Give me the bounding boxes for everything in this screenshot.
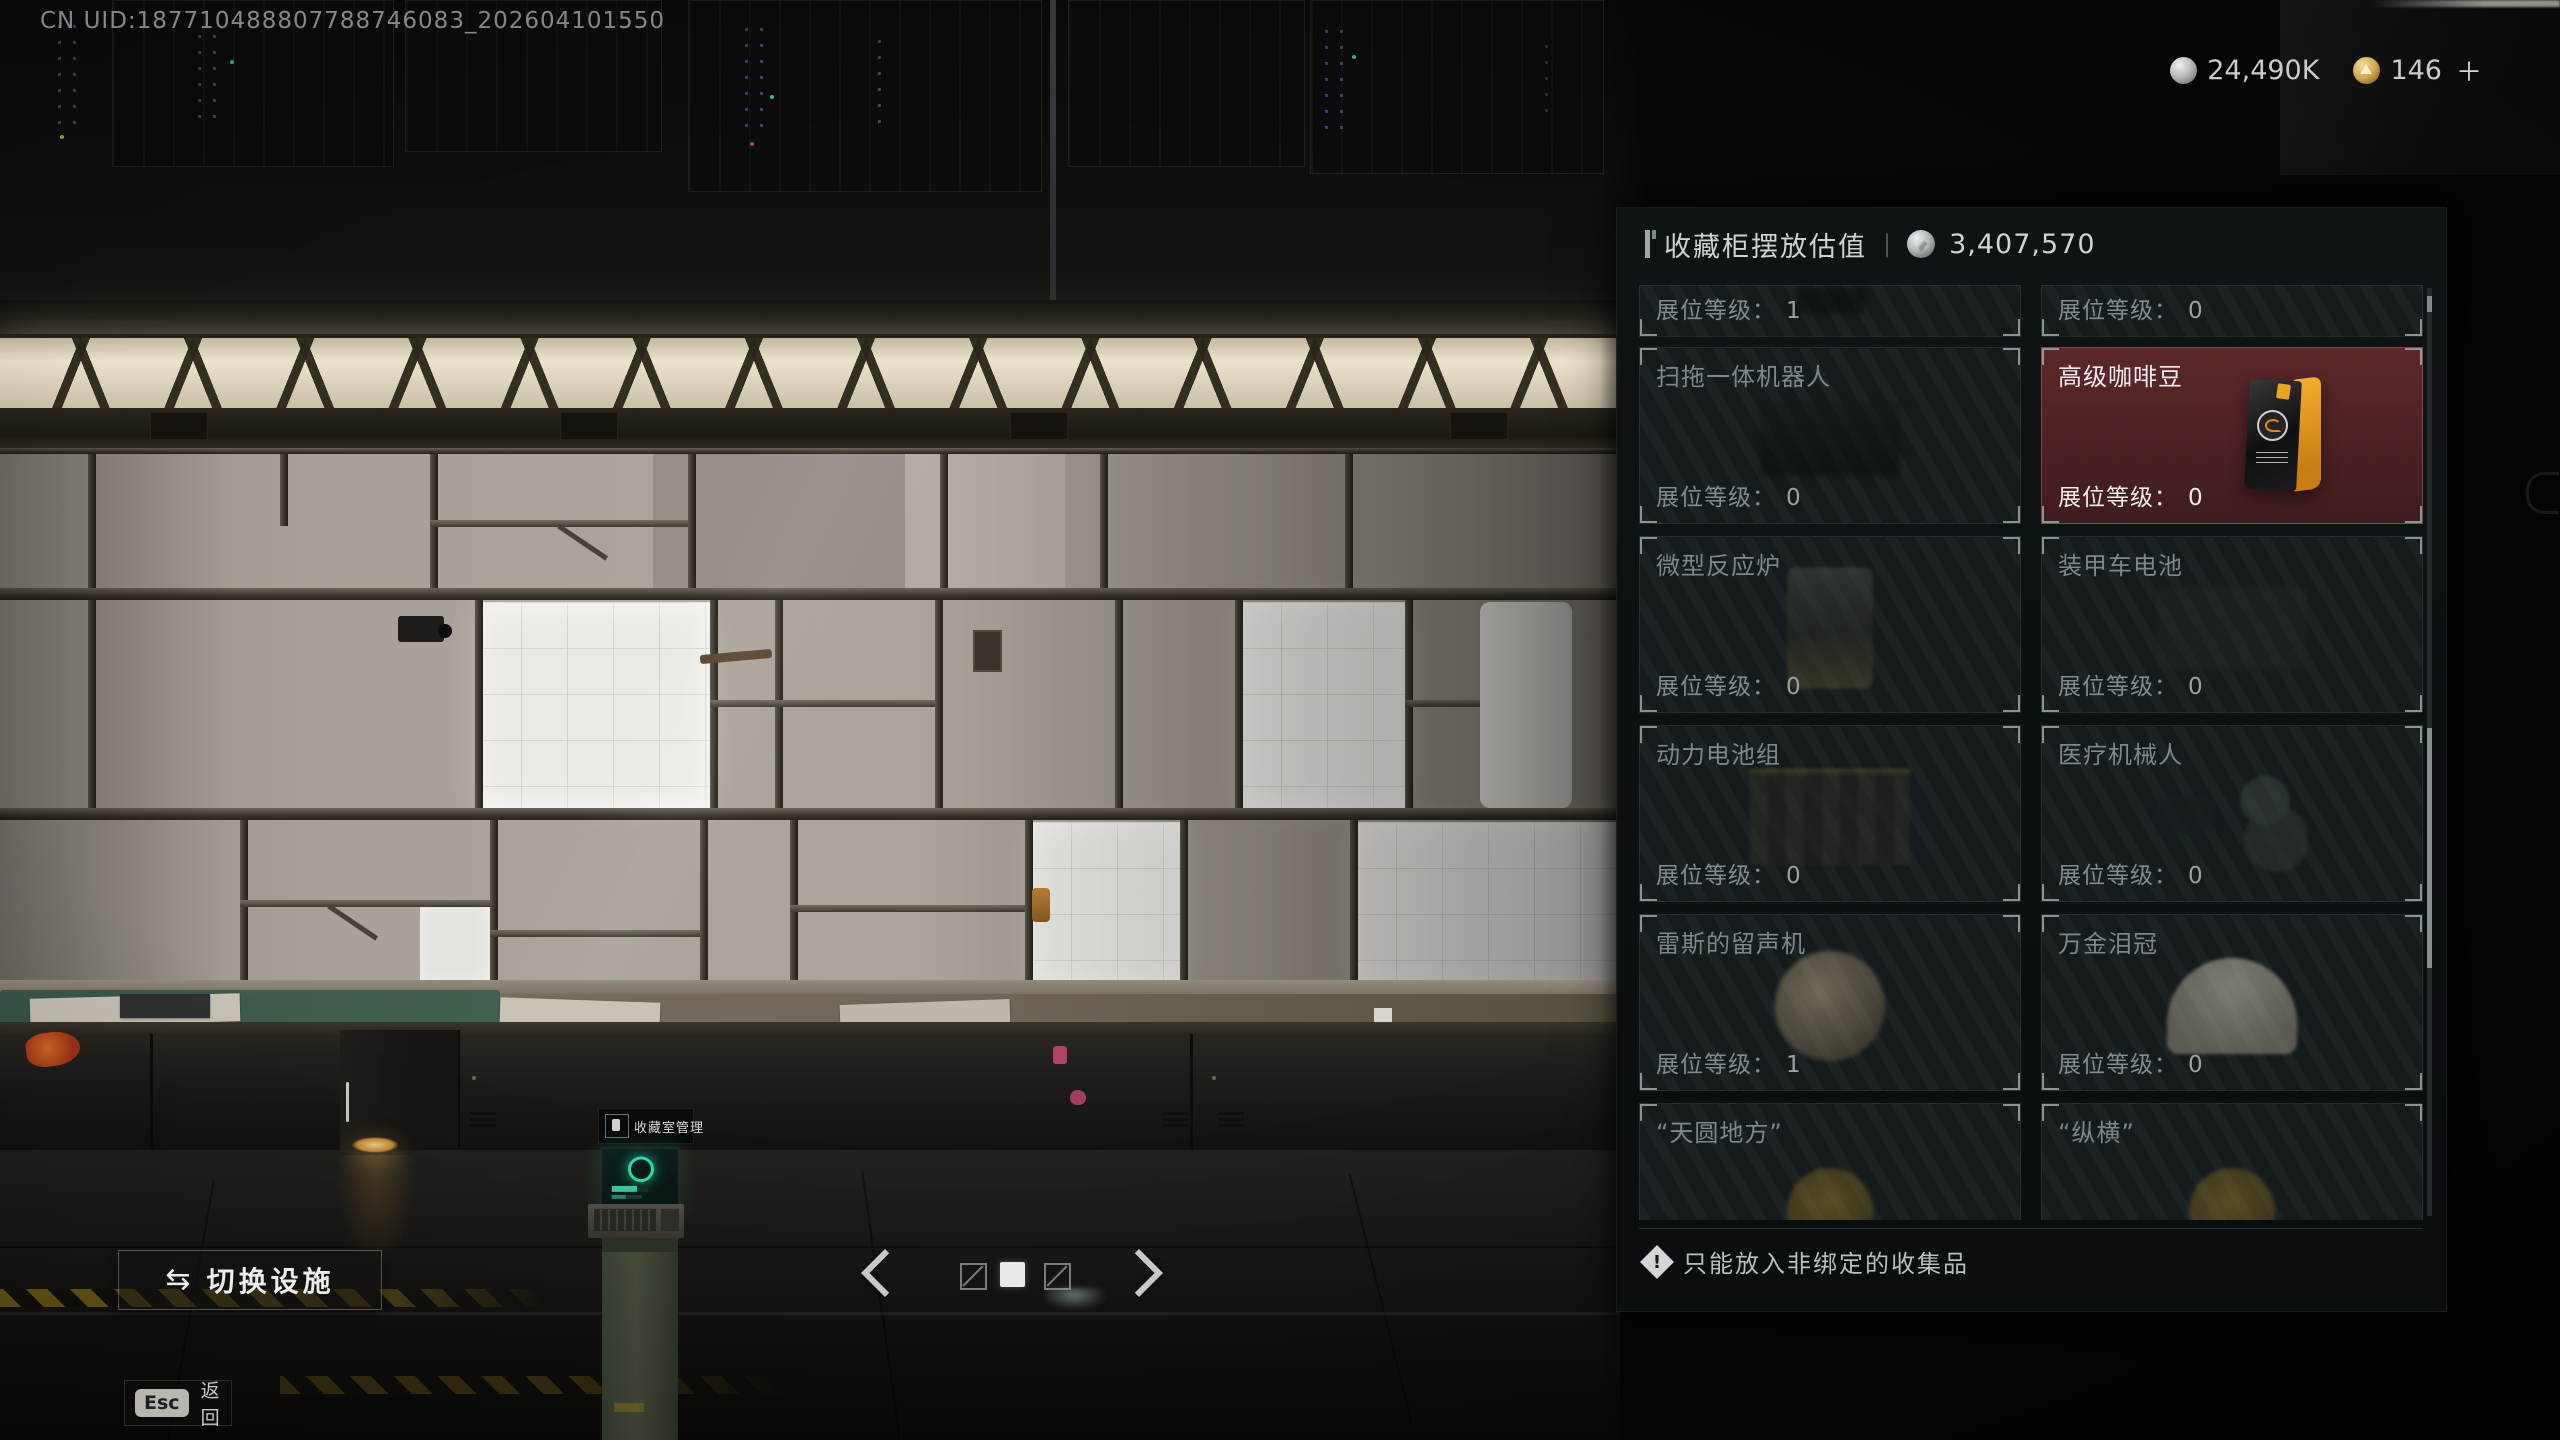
corner-bracket: [1640, 1104, 1657, 1121]
slot-level: 展位等级：0: [2058, 478, 2204, 512]
corner-bracket: [2042, 537, 2059, 554]
collection-slot[interactable]: 雷斯的留声机 展位等级：1: [1639, 914, 2021, 1091]
item-ghost-crown: [2167, 958, 2297, 1054]
under-cabinet-light: [352, 1137, 398, 1153]
corner-bracket: [2042, 695, 2059, 712]
backlit-panel: [1350, 822, 1620, 985]
terminal-tooltip: 收藏室管理: [598, 1108, 694, 1144]
collection-cabinet-panel: 收藏柜摆放估值 | 3,407,570 展位等级：1 展位等级：0 扫拖一体机器…: [1616, 207, 2447, 1312]
wall-post: [1235, 600, 1243, 808]
cabinet-vent: [470, 1112, 496, 1128]
scrollbar-cap: [2427, 296, 2432, 312]
door-handle: [2526, 472, 2559, 514]
led-dot: [750, 142, 754, 146]
shelf-brace: [327, 904, 378, 941]
indicator-slash: [962, 1265, 983, 1286]
slot-item-name: 医疗机械人: [2058, 735, 2183, 770]
slot-item-name: “纵横”: [2058, 1113, 2135, 1148]
terminal-screen[interactable]: [599, 1147, 680, 1210]
corner-bracket: [2042, 884, 2059, 901]
back-control[interactable]: Esc 返回: [124, 1380, 232, 1426]
corner-bracket: [1640, 726, 1657, 743]
led-column: [213, 35, 216, 130]
corner-bracket: [1640, 884, 1657, 901]
shelf: [710, 700, 935, 707]
shelf-brace: [557, 524, 608, 561]
slot-level: 展位等级：0: [1656, 478, 1802, 512]
corner-bracket: [2042, 726, 2059, 743]
slot-item-name: 万金泪冠: [2058, 924, 2158, 959]
page-indicator-1[interactable]: [960, 1263, 987, 1290]
hazard-stripe: [280, 1376, 790, 1394]
corner-bracket: [1640, 537, 1657, 554]
currency-bar: 24,490K 146 ＋: [2170, 52, 2482, 89]
slot-level: 展位等级：0: [2058, 856, 2204, 890]
collection-slot[interactable]: 展位等级：0: [2041, 285, 2423, 337]
valuation-value: 3,407,570: [1949, 229, 2095, 260]
corner-bracket: [2003, 319, 2020, 336]
cabinet-vent: [1163, 1112, 1189, 1128]
display-wall: [0, 448, 1620, 985]
wall-post: [475, 600, 483, 808]
indicator-glow: [1042, 1288, 1106, 1310]
coffee-bag-text-lines: [2256, 452, 2288, 464]
mount-plate: [150, 412, 208, 440]
collection-slot[interactable]: “天圆地方”: [1639, 1103, 2021, 1220]
header-divider: |: [1883, 230, 1891, 258]
corner-bracket: [2003, 506, 2020, 523]
display-pillar: [1480, 602, 1572, 808]
slot-level: 展位等级：0: [1656, 667, 1802, 701]
terminal-pedestal: [602, 1238, 678, 1440]
corner-bracket: [1640, 915, 1657, 932]
slot-level: 展位等级：1: [1656, 291, 1802, 325]
mount-plate: [1450, 412, 1508, 440]
led-dot: [770, 95, 774, 99]
wall-post: [1115, 600, 1123, 808]
terminal-progress-bar: [612, 1195, 642, 1199]
led-column: [878, 40, 881, 135]
collection-slot[interactable]: 装甲车电池 展位等级：0: [2041, 536, 2423, 713]
led-dot: [1352, 55, 1356, 59]
panel-title: 收藏柜摆放估值: [1664, 225, 1867, 264]
wall-post: [88, 454, 96, 588]
coffee-bag-tag: [2276, 383, 2291, 400]
scrollbar-thumb[interactable]: [2427, 728, 2432, 968]
collection-slot-selected[interactable]: 高级咖啡豆 展位等级：0: [2041, 347, 2423, 524]
valuation-coin-icon: [1907, 230, 1935, 258]
light-reflection: [336, 1155, 416, 1265]
corner-bracket: [2042, 506, 2059, 523]
corner-bracket: [2405, 506, 2422, 523]
footer-divider: [1639, 1228, 2423, 1229]
shelf: [790, 905, 1025, 912]
item-image-coffee-bag: [2247, 374, 2329, 494]
panel-header: 收藏柜摆放估值 | 3,407,570: [1645, 224, 2096, 264]
slot-level: 展位等级：0: [1656, 856, 1802, 890]
uid-watermark: CN UID:187710488807788746083_20260410155…: [40, 8, 665, 34]
slot-item-name: 动力电池组: [1656, 735, 1781, 770]
item-ghost-medallion: [1787, 1168, 1873, 1220]
corner-bracket: [2405, 1104, 2422, 1121]
led-column: [58, 25, 61, 125]
wall-post: [935, 600, 943, 808]
locker-handle: [346, 1082, 349, 1122]
wall-post: [1345, 454, 1353, 588]
mount-plate: [1010, 412, 1068, 440]
page-indicator-3[interactable]: [1044, 1263, 1071, 1290]
slot-item-name: “天圆地方”: [1656, 1113, 1783, 1148]
ceiling-rack: [688, 0, 1042, 192]
counter-front: [0, 1022, 1620, 1034]
item-ghost-power-cell: [1750, 769, 1910, 865]
indicator-slash: [1046, 1265, 1067, 1286]
wall-rail: [0, 808, 1620, 820]
wall-rail: [0, 588, 1620, 600]
corner-bracket: [2003, 537, 2020, 554]
ceiling-rack: [1068, 0, 1305, 167]
slot-item-name: 高级咖啡豆: [2058, 357, 2183, 392]
wall-post: [1100, 454, 1108, 588]
corner-bracket: [2042, 1073, 2059, 1090]
gold-currency: 146 ＋: [2353, 52, 2482, 89]
slot-level: 展位等级：0: [2058, 667, 2204, 701]
silver-currency-value: 24,490K: [2207, 55, 2319, 86]
silver-currency: 24,490K: [2170, 55, 2319, 86]
shelf: [1405, 700, 1480, 707]
corner-bracket: [2003, 915, 2020, 932]
coffee-bag-logo: [2257, 410, 2288, 441]
corner-bracket: [2405, 1073, 2422, 1090]
keyhole: [1212, 1076, 1216, 1080]
cabinet-seam: [150, 1034, 153, 1150]
collection-slot[interactable]: 展位等级：1: [1639, 285, 2021, 337]
terminal-logo-icon: [628, 1157, 654, 1182]
collection-slot[interactable]: 万金泪冠 展位等级：0: [2041, 914, 2423, 1091]
corner-bracket: [2405, 348, 2422, 365]
wall-post: [1350, 820, 1358, 985]
gold-currency-value: 146: [2390, 55, 2442, 86]
esc-key-badge: Esc: [135, 1389, 189, 1417]
slot-level: 展位等级：0: [2058, 291, 2204, 325]
add-currency-button[interactable]: ＋: [2456, 52, 2482, 89]
corner-bracket: [2405, 726, 2422, 743]
corner-bracket: [2003, 884, 2020, 901]
camera-lens: [438, 624, 452, 638]
corner-bracket: [2042, 348, 2059, 365]
base-cabinets: [0, 1034, 1620, 1150]
ceiling-divider: [1050, 0, 1056, 330]
panel-scrollbar[interactable]: [2427, 288, 2432, 1216]
floor-seam: [861, 1171, 901, 1439]
corner-bracket: [2042, 915, 2059, 932]
mount-plate: [560, 412, 618, 440]
header-accent-bar: [1645, 230, 1650, 258]
corner-bracket: [2042, 1104, 2059, 1121]
floor-seam: [1349, 1174, 1414, 1427]
pink-item: [1053, 1046, 1067, 1064]
figurine-item: [1032, 888, 1050, 922]
slot-item-name: 微型反应炉: [1656, 546, 1781, 581]
wall-post: [280, 454, 288, 526]
corner-bracket: [2003, 695, 2020, 712]
cabinet-seam: [1190, 1034, 1193, 1150]
plaque-item: [973, 630, 1002, 672]
led-column: [1340, 30, 1343, 130]
gold-coin-icon: [2353, 57, 2380, 84]
skylight-valance: [0, 408, 1620, 448]
footer-note: 只能放入非绑定的收集品: [1683, 1244, 1969, 1279]
wall-rail: [0, 448, 1620, 454]
corner-bracket: [2003, 726, 2020, 743]
shelf: [490, 930, 700, 937]
wall-post: [688, 454, 696, 588]
terminal-progress-bar: [612, 1186, 648, 1192]
wall-panel: [905, 448, 1065, 592]
slot-item-name: 装甲车电池: [2058, 546, 2183, 581]
floor-seam: [0, 1246, 1620, 1248]
corner-bracket: [1640, 1073, 1657, 1090]
item-ghost-battery: [2157, 587, 2307, 669]
floor-step-edge: [0, 1312, 1620, 1315]
backlit-panel: [475, 602, 710, 808]
cabinet-vent: [1218, 1112, 1244, 1128]
wall-post: [88, 600, 96, 808]
backlit-panel: [420, 900, 490, 985]
slot-item-name: 扫拖一体机器人: [1656, 357, 1831, 392]
led-column: [198, 35, 201, 130]
wall-post: [790, 820, 798, 985]
item-ghost-robot-vacuum: [1760, 402, 1900, 476]
collection-slot[interactable]: 扫拖一体机器人 展位等级：0: [1639, 347, 2021, 524]
led-column: [1545, 45, 1548, 125]
ceiling-highlight: [2370, 0, 2560, 7]
corner-bracket: [2405, 884, 2422, 901]
game-screen: 收藏室管理 CN UID:187710488807788746083_20260…: [0, 0, 2560, 1440]
led-column: [1325, 30, 1328, 130]
notebook: [120, 994, 210, 1018]
led-column: [745, 28, 748, 138]
corner-bracket: [2405, 695, 2422, 712]
led-column: [73, 25, 76, 125]
switch-arrows-icon: ⇆: [165, 1265, 190, 1295]
skylight: [0, 334, 1620, 414]
led-dot: [60, 135, 64, 139]
collection-slot[interactable]: 医疗机械人 展位等级：0: [2041, 725, 2423, 902]
corner-bracket: [1640, 506, 1657, 523]
back-label: 返回: [201, 1376, 231, 1430]
corner-bracket: [2405, 915, 2422, 932]
panel-footer: 只能放入非绑定的收集品: [1645, 1244, 1969, 1279]
backlit-panel: [1235, 602, 1405, 808]
corner-bracket: [2003, 1073, 2020, 1090]
collection-slot[interactable]: “纵横”: [2041, 1103, 2423, 1220]
collection-slot[interactable]: 微型反应炉 展位等级：0: [1639, 536, 2021, 713]
small-box-item: [1374, 1008, 1392, 1022]
terminal-keyboard: [588, 1204, 684, 1238]
pink-heart-item: [1070, 1090, 1086, 1105]
silver-coin-icon: [2170, 57, 2197, 84]
corner-bracket: [1640, 695, 1657, 712]
slot-level: 展位等级：0: [2058, 1045, 2204, 1079]
corner-bracket: [2003, 348, 2020, 365]
wall-post: [490, 820, 498, 985]
slot-level: 展位等级：1: [1656, 1045, 1802, 1079]
slot-item-name: 雷斯的留声机: [1656, 924, 1806, 959]
switch-facility-label: 切换设施: [207, 1260, 335, 1300]
wall-post: [940, 454, 948, 588]
corner-bracket: [2003, 1104, 2020, 1121]
ceiling-beam: [0, 300, 1620, 334]
item-ghost: [1795, 288, 1865, 314]
wall-post: [1180, 820, 1188, 985]
cabinet-icon: [605, 1114, 629, 1138]
collection-slot[interactable]: 动力电池组 展位等级：0: [1639, 725, 2021, 902]
switch-facility-button[interactable]: ⇆ 切换设施: [118, 1250, 382, 1310]
item-ghost-medallion: [2189, 1168, 2275, 1220]
corner-bracket: [2405, 319, 2422, 336]
wall-post: [700, 820, 708, 985]
page-indicator-2-active[interactable]: [1000, 1262, 1025, 1287]
corner-bracket: [2405, 537, 2422, 554]
corner-bracket: [2042, 319, 2059, 336]
keyhole: [472, 1076, 476, 1080]
led-dot: [230, 60, 234, 64]
shelf: [240, 900, 490, 907]
ceiling-rack: [1310, 0, 1604, 174]
corner-bracket: [1640, 319, 1657, 336]
terminal-tooltip-label: 收藏室管理: [634, 1117, 704, 1136]
led-column: [760, 28, 763, 138]
locker: [340, 1030, 460, 1152]
corner-bracket: [1640, 348, 1657, 365]
warning-diamond-icon: [1640, 1245, 1674, 1279]
